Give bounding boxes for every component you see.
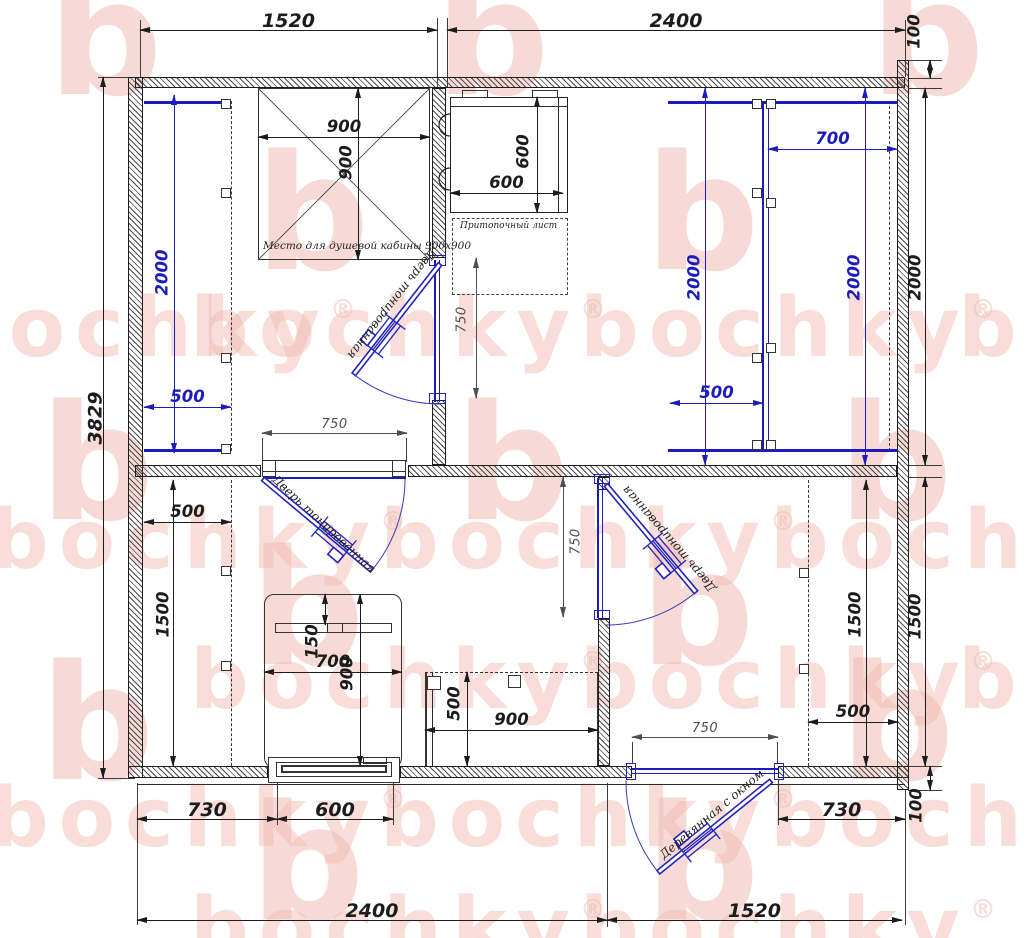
dim-bed-headboard: 150 — [325, 594, 326, 625]
dim-shower-depth: 900 — [358, 88, 359, 260]
dim-rest-door: 750 — [262, 433, 407, 434]
door-swing-arc — [606, 592, 696, 625]
hearth-plate-label: Притопочный лист — [460, 221, 557, 231]
dim-shower-door: 750 — [476, 258, 477, 398]
dim-steam-bench-left-depth: 500 — [670, 403, 763, 404]
dim-bottom-left-width: 2400 — [137, 920, 607, 921]
dim-bottom-right-run: 730 — [778, 819, 905, 820]
door-leaf-hall — [594, 477, 706, 603]
floor-plan: bbbbbbochky®bochky®bochky®bochky®bbbboch… — [0, 0, 1028, 938]
dim-bed-length: 900 — [360, 594, 361, 766]
dim-steam-bench-right-length: 2000 — [865, 88, 866, 465]
dim-wash-bench-depth: 500 — [144, 407, 231, 408]
dim-bench-depth: 500 — [467, 672, 468, 766]
dim-steam-bench-right-depth: 700 — [768, 149, 897, 150]
door-leaf-shower — [341, 254, 450, 382]
dim-bottom-right-width: 1520 — [607, 920, 902, 921]
shower-area-label: Место для душевой кабины 900x900 — [263, 240, 471, 252]
dim-steam-bench-left-length: 2000 — [705, 88, 706, 465]
dim-hall-shelf-depth: 500 — [808, 722, 898, 723]
dim-hall-door: 750 — [563, 477, 564, 617]
dim-top-overhang: 100 — [930, 60, 931, 78]
dim-hall-room-height: 1500 — [866, 480, 867, 766]
dim-entry-door: 750 — [632, 737, 778, 738]
door-leaf-entrance — [648, 769, 779, 883]
dim-top-right-width: 2400 — [447, 30, 905, 31]
door-swing-arc — [372, 479, 405, 570]
dim-stove-height: 600 — [537, 97, 538, 213]
door-swing-arc — [354, 374, 440, 404]
dim-bottom-overhang: 100 — [930, 766, 931, 790]
dim-window-width: 600 — [277, 819, 393, 820]
dim-overall-height: 3829 — [103, 77, 104, 778]
dim-wash-bench-length: 2000 — [174, 95, 175, 453]
dim-steam-room-side: 2000 — [925, 88, 926, 465]
dim-rest-room-height: 1500 — [173, 480, 174, 766]
dim-bottom-left-run: 730 — [137, 819, 277, 820]
door-swing-arc — [626, 781, 658, 872]
dim-rest-shelf-depth: 500 — [144, 522, 231, 523]
dim-shower-width: 900 — [258, 137, 430, 138]
dim-top-left-width: 1520 — [140, 30, 437, 31]
dim-stove-width: 600 — [450, 193, 563, 194]
dim-bench-width: 900 — [425, 730, 598, 731]
dim-right-lower-side: 1500 — [925, 477, 926, 766]
dim-bed-width: 700 — [264, 672, 402, 673]
stove-side-bumps — [439, 114, 450, 190]
window-vent-notch — [363, 757, 387, 764]
